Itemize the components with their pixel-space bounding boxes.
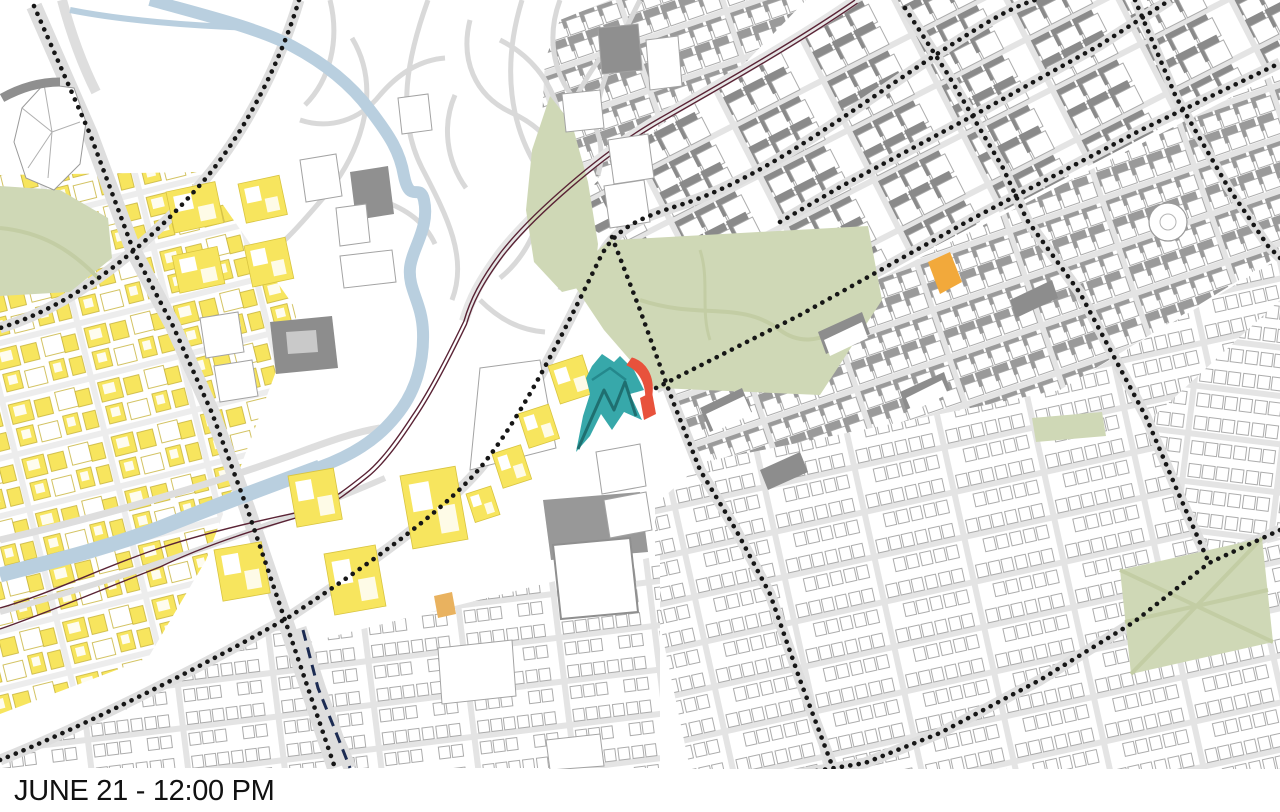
svg-text:JUNE 21 - 12:00 PM: JUNE 21 - 12:00 PM (14, 775, 275, 807)
